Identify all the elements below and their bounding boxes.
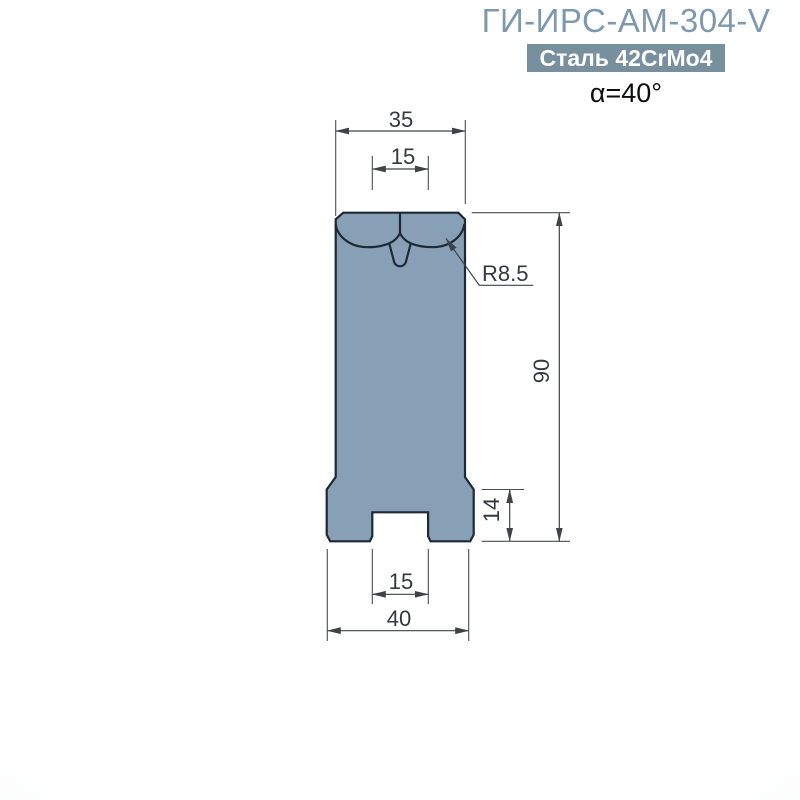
dim-label-base-width: 40 <box>387 606 411 631</box>
page: ГИ-ИРС-АМ-304-V Сталь 42CrMo4 α=40° 35 <box>0 0 800 800</box>
technical-drawing: 35 15 R8.5 90 14 <box>0 0 800 800</box>
dim-label-base-height: 14 <box>479 498 504 522</box>
dim-base-width: 40 <box>327 549 468 641</box>
dim-base-height: 14 <box>479 490 524 542</box>
dim-slot-width: 15 <box>372 549 428 604</box>
dim-label-shoulder-radius: R8.5 <box>482 261 528 286</box>
die-body-outline <box>327 213 474 542</box>
dim-label-slot-width: 15 <box>389 569 413 594</box>
dim-label-v-opening: 15 <box>391 144 415 169</box>
dim-v-opening: 15 <box>372 144 428 190</box>
dim-label-total-height: 90 <box>529 359 554 383</box>
dim-label-top-width: 35 <box>389 107 413 132</box>
